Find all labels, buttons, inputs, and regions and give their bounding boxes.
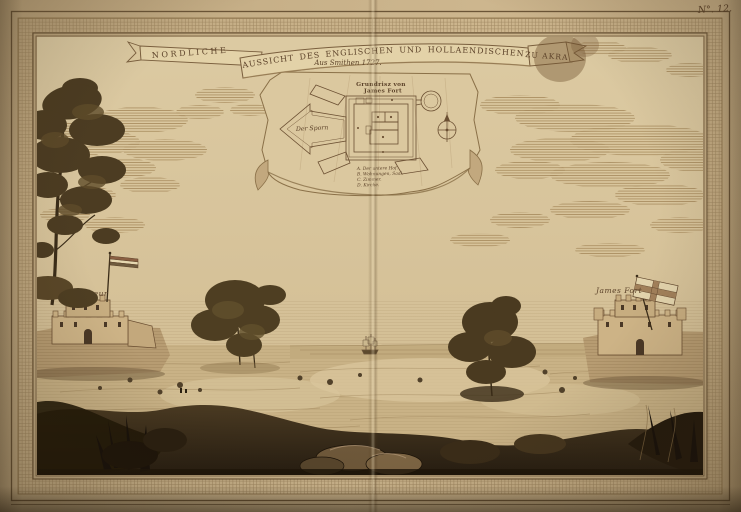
plate-number: N°. 12.	[697, 3, 733, 16]
plan-legend-line: D. Kirche.	[356, 183, 379, 188]
banner-subtitle: Aus Smithen 1727.	[313, 59, 381, 67]
engraving-artwork: N°. 12.	[0, 0, 741, 512]
plan-title-line1: Grundrisz von	[356, 82, 406, 88]
plan-title-line2: James Fort	[363, 89, 402, 95]
drapery: Grundrisz von James Fort Der Sporn A. De…	[255, 72, 482, 196]
right-fort-label: James Fort	[594, 286, 643, 295]
engraving-page: N°. 12.	[0, 0, 741, 512]
